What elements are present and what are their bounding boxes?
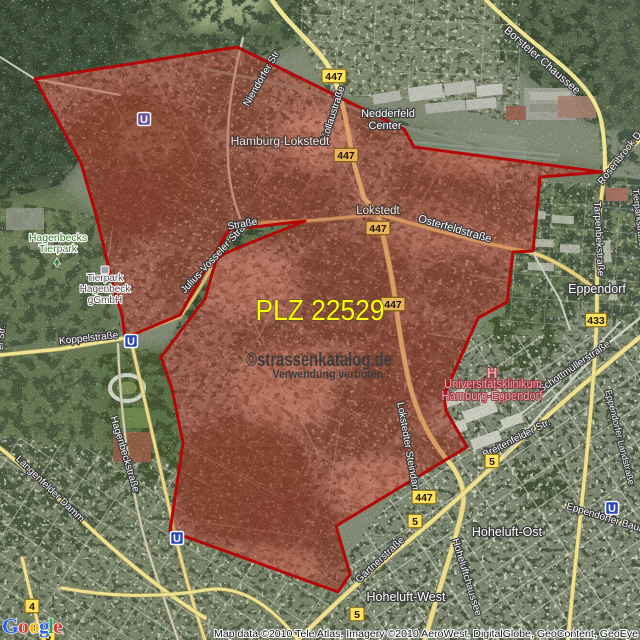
- svg-text:Verwendung verboten !: Verwendung verboten !: [273, 367, 390, 381]
- svg-text:447: 447: [325, 71, 343, 83]
- svg-text:447: 447: [337, 150, 355, 162]
- svg-text:PLZ 22529: PLZ 22529: [256, 295, 385, 327]
- svg-text:U: U: [140, 114, 148, 126]
- svg-text:5: 5: [354, 609, 360, 621]
- svg-text:U: U: [173, 533, 181, 545]
- svg-text:Hagenbeck: Hagenbeck: [80, 284, 132, 295]
- svg-text:G: G: [2, 614, 19, 638]
- svg-text:Lokstedt: Lokstedt: [356, 205, 400, 217]
- svg-text:U: U: [608, 503, 616, 515]
- svg-text:447: 447: [415, 492, 433, 504]
- svg-text:Hamburg-Eppendorf: Hamburg-Eppendorf: [442, 389, 543, 403]
- svg-text:gGmbH: gGmbH: [88, 295, 122, 306]
- svg-text:U: U: [127, 336, 135, 348]
- svg-text:Hamburg-Lokstedt: Hamburg-Lokstedt: [231, 134, 330, 148]
- svg-text:Map data ©2010 Tele Atlas, Ima: Map data ©2010 Tele Atlas, Imagery ©2010…: [214, 629, 638, 640]
- svg-text:Hoheluft-West: Hoheluft-West: [367, 590, 446, 604]
- svg-text:447: 447: [369, 223, 387, 235]
- svg-text:Tierpark: Tierpark: [87, 273, 124, 284]
- svg-text:433: 433: [587, 315, 605, 327]
- svg-text:Center: Center: [368, 120, 401, 132]
- svg-text:o: o: [18, 614, 29, 638]
- svg-text:Tierpark: Tierpark: [39, 243, 78, 255]
- svg-text:5: 5: [412, 516, 418, 528]
- svg-text:Hoheluft-Ost: Hoheluft-Ost: [472, 525, 543, 539]
- svg-text:4: 4: [29, 601, 35, 613]
- svg-text:Nedderfeld: Nedderfeld: [361, 108, 415, 120]
- svg-text:Eppendorf: Eppendorf: [568, 282, 626, 296]
- svg-text:5: 5: [489, 456, 495, 468]
- svg-text:447: 447: [384, 299, 402, 311]
- svg-text:e: e: [53, 614, 63, 638]
